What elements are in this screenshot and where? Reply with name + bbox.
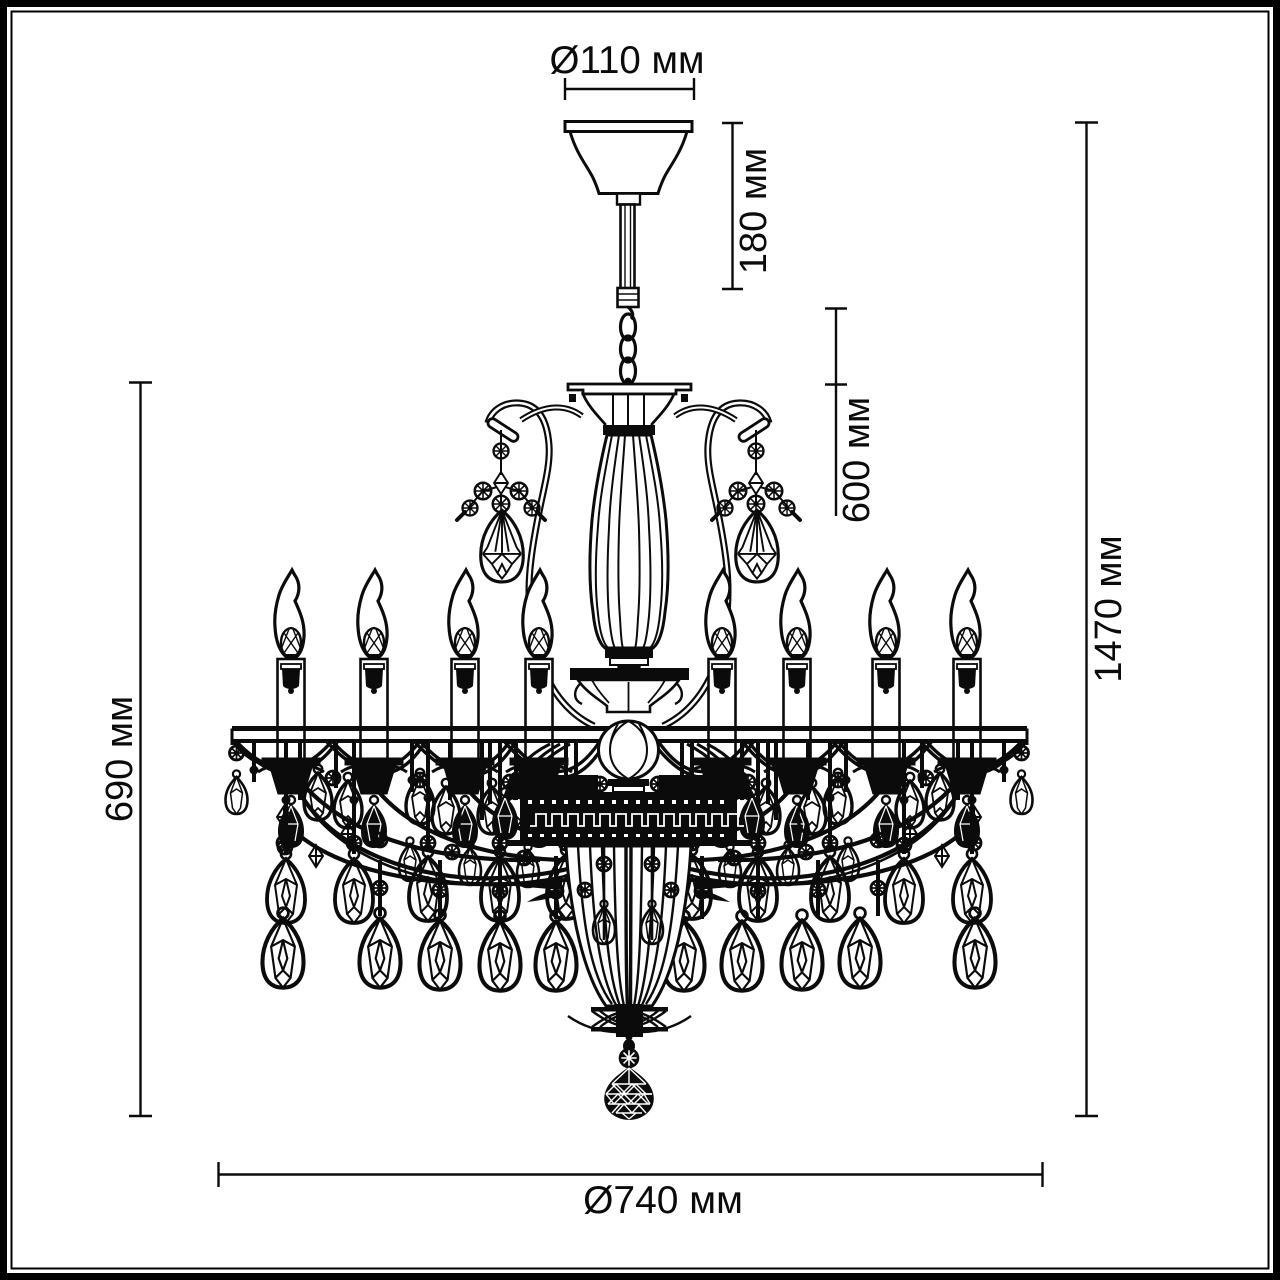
svg-text:1470 мм: 1470 мм: [1088, 535, 1130, 682]
svg-text:180 мм: 180 мм: [733, 148, 775, 274]
svg-text:690 мм: 690 мм: [99, 696, 141, 822]
svg-text:Ø740 мм: Ø740 мм: [583, 1179, 743, 1222]
svg-text:600 мм: 600 мм: [836, 397, 878, 523]
svg-text:Ø110 мм: Ø110 мм: [550, 39, 705, 82]
